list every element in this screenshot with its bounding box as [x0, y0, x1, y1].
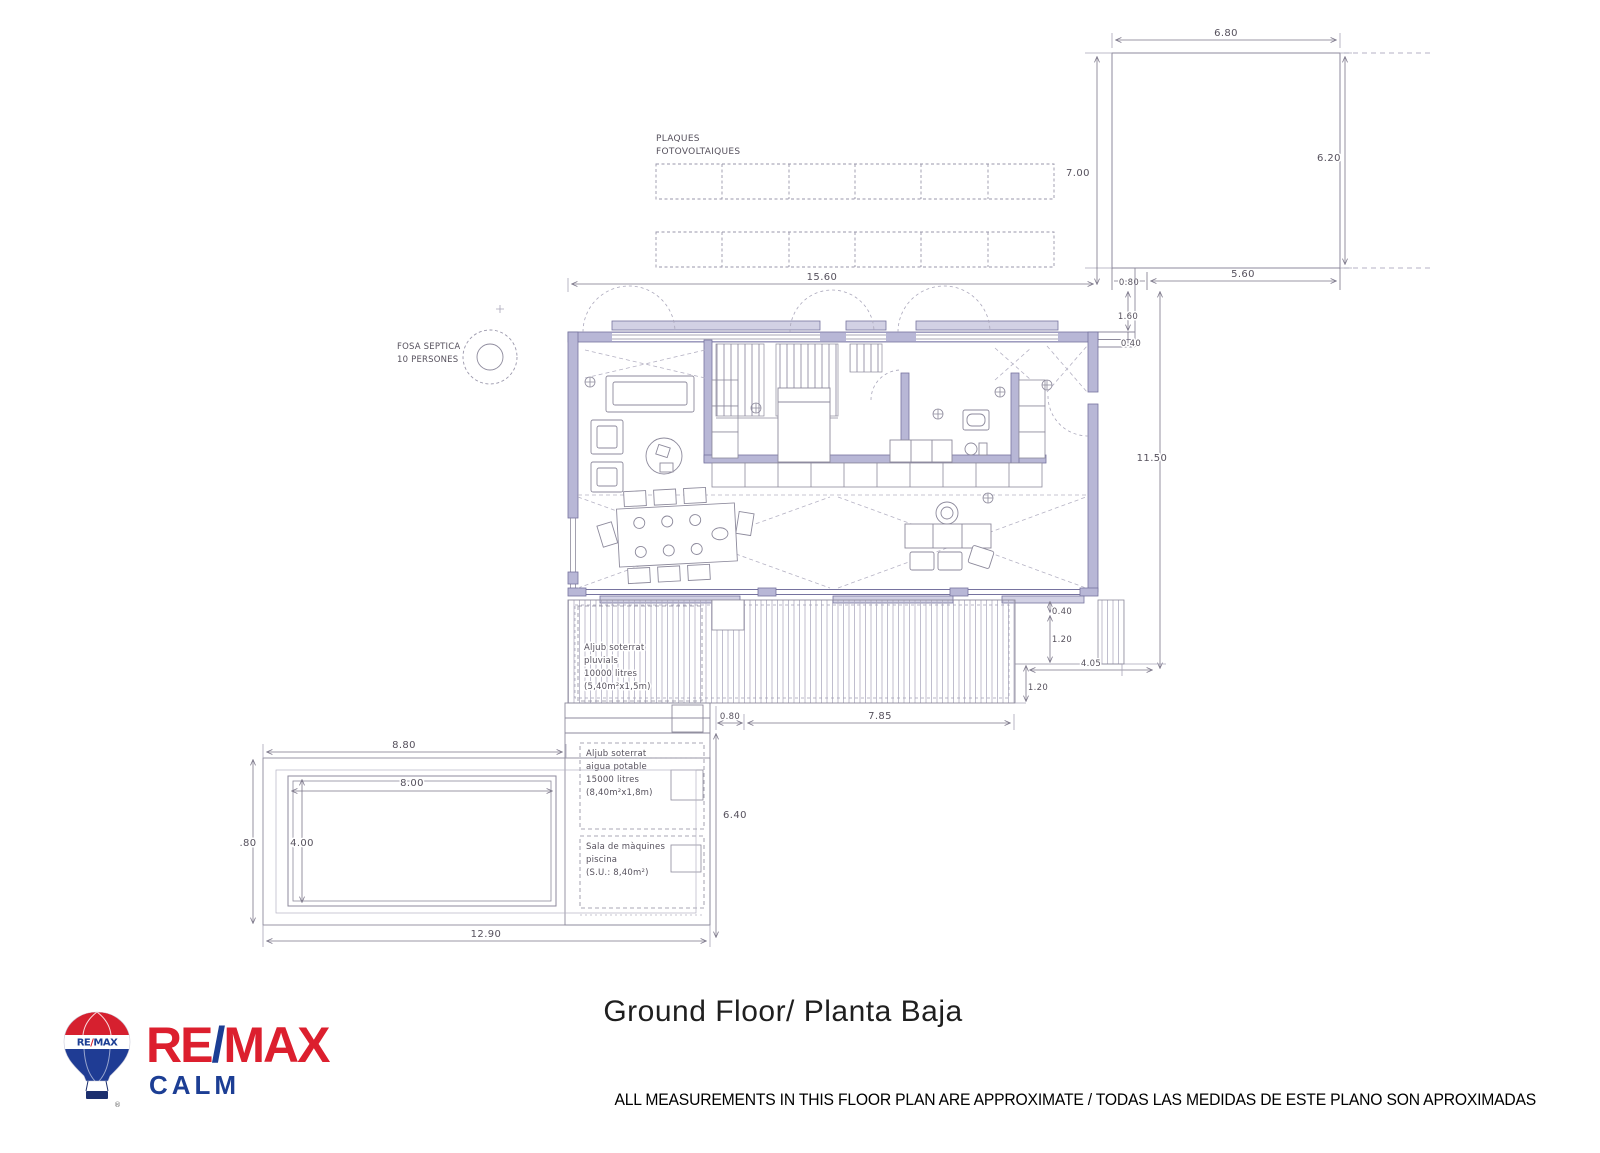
disclaimer-text: ALL MEASUREMENTS IN THIS FLOOR PLAN ARE … [614, 1091, 1536, 1110]
dimension-label: 4.05 [1081, 659, 1101, 669]
dimension-label: 1.20 [1052, 635, 1072, 645]
dimension-label: 6.40 [723, 810, 747, 821]
tank-label: pluvials [584, 656, 619, 666]
remax-balloon-icon: RE/MAX ® [58, 1010, 136, 1110]
room-label: piscina [586, 855, 617, 865]
living-room-sofa [591, 376, 694, 492]
floor-plan-drawing: 6.80 6.20 7.00 5.60 0.80 1.60 0.40 11.50… [0, 0, 1600, 1153]
dimension-label: 7.00 [1066, 168, 1090, 179]
equipment-rooms [565, 703, 710, 925]
brand-slash: / [211, 1017, 223, 1073]
dimension-label: 15.60 [807, 272, 838, 283]
deck-bottom-dimensions [716, 706, 1014, 937]
dimension-label: 8.00 [400, 778, 424, 789]
trademark-symbol: ® [114, 1101, 121, 1109]
solar-label: FOTOVOLTAIQUES [656, 147, 740, 157]
balloon-brand-max: MAX [93, 1038, 118, 1049]
dimension-label: 6.80 [1214, 28, 1238, 39]
dining-table [595, 485, 757, 585]
page-title: Ground Floor/ Planta Baja [483, 995, 1083, 1029]
dimension-label: 12.90 [471, 929, 502, 940]
tank-label: aigua potable [586, 762, 647, 772]
fosa-septica-symbol [463, 305, 517, 384]
fosa-label: FOSA SEPTICA [397, 342, 460, 352]
tank-label: 10000 litres [584, 669, 638, 679]
coffee-table [646, 438, 682, 474]
dimension-label: 1.60 [1118, 312, 1138, 322]
tank-label: (8,40m²x1,8m) [586, 788, 653, 798]
fosa-label: 10 PERSONES [397, 355, 458, 365]
dimension-label: 0.80 [1119, 278, 1139, 288]
room-label: (S.U.: 8,40m²) [586, 868, 649, 878]
dimension-label: .80 [239, 838, 256, 849]
dimension-label: 0.40 [1121, 339, 1141, 349]
garage-outline [1112, 53, 1432, 268]
dimension-label: 8.80 [392, 740, 416, 751]
tank-label: (5,40m²x1,5m) [584, 682, 651, 692]
dimension-label: 6.20 [1317, 153, 1341, 164]
solar-panel-array [656, 164, 1054, 267]
kitchen-counter [712, 463, 1042, 487]
tank-label: 15000 litres [586, 775, 640, 785]
garage-dimensions [1085, 33, 1352, 290]
dimension-label: 11.50 [1137, 453, 1168, 464]
tank-label: Aljub soterrat [584, 643, 645, 653]
brand-re: RE [146, 1017, 211, 1073]
dimension-label: 1.20 [1028, 683, 1048, 693]
brand-max: MAX [223, 1017, 328, 1073]
dimension-label: 0.80 [720, 712, 740, 722]
solar-label: PLAQUES [656, 134, 700, 144]
balloon-brand-re: RE [77, 1038, 91, 1049]
tank-label: Aljub soterrat [586, 749, 647, 759]
desk [905, 502, 994, 570]
brand-text: RE/MAX [146, 1022, 328, 1070]
dimension-label: 5.60 [1231, 269, 1255, 280]
remax-wordmark: RE/MAX CALM [146, 1022, 328, 1097]
dimension-label: 7.85 [868, 711, 892, 722]
remax-logo: RE/MAX ® RE/MAX CALM [58, 1008, 378, 1118]
bed [778, 388, 830, 462]
svg-text:RE/MAX: RE/MAX [77, 1038, 118, 1049]
office-name: CALM [149, 1073, 328, 1098]
room-label: Sala de màquines [586, 842, 665, 852]
dimension-label: 4.00 [290, 838, 314, 849]
dimension-label: 0.40 [1052, 607, 1072, 617]
